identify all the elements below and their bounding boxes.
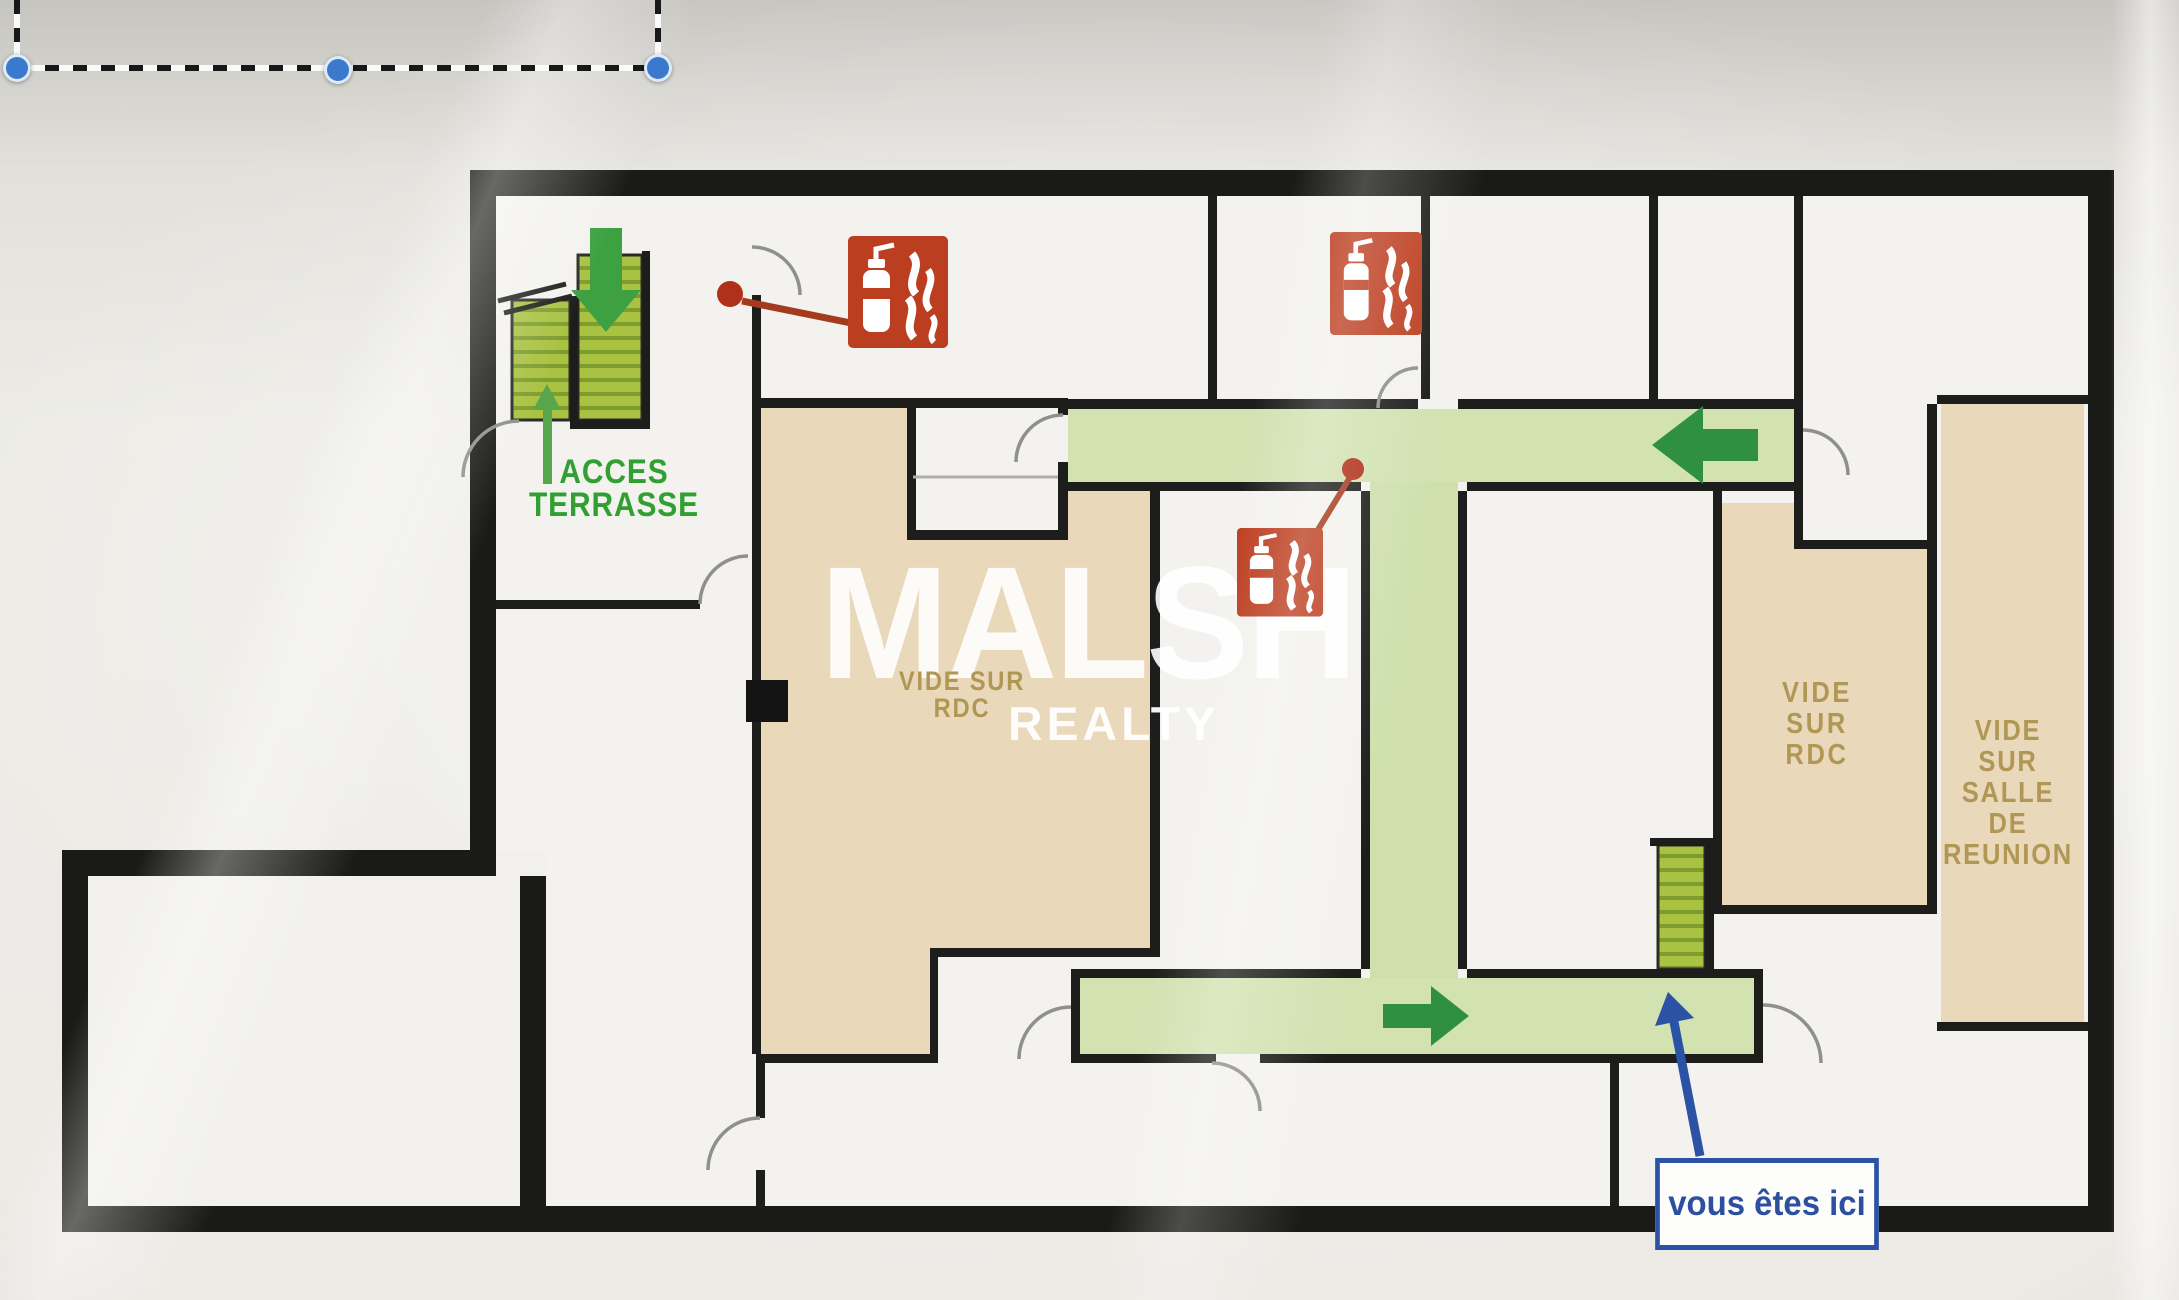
you-are-here-box: vous êtes ici <box>1655 1158 1879 1250</box>
selection-handle-bottom-left[interactable] <box>3 54 31 82</box>
selection-handle-bottom-right[interactable] <box>644 54 672 82</box>
label-acces-terrasse: ACCES TERRASSE <box>482 456 746 522</box>
you-are-here-text: vous êtes ici <box>1668 1184 1866 1224</box>
pillar-icon <box>746 680 788 722</box>
fire-extinguisher-icon <box>848 236 948 348</box>
void-room-meeting <box>1941 404 2084 1022</box>
fire-extinguisher-icon <box>1237 528 1323 616</box>
stairs-icon <box>1658 845 1705 969</box>
label-vide-sur-rdc-center: VIDE SUR RDC <box>830 668 1094 722</box>
extinguisher-location-dot <box>1342 458 1364 480</box>
extinguisher-location-dot <box>717 281 743 307</box>
floor-plan: MALSH REALTY <box>0 0 2179 1300</box>
evacuation-plan-photo: MALSH REALTY ACCES TERRASSE VIDE SUR RDC… <box>0 0 2179 1300</box>
label-vide-sur-salle-de-reunion: VIDE SUR SALLE DE REUNION <box>1876 716 2140 871</box>
screenshot-of-evacuation-plan-photo: MALSH REALTY ACCES TERRASSE VIDE SUR RDC… <box>0 0 2179 1300</box>
fire-extinguisher-icon <box>1330 232 1422 335</box>
selection-handle-bottom-middle[interactable] <box>324 56 352 84</box>
